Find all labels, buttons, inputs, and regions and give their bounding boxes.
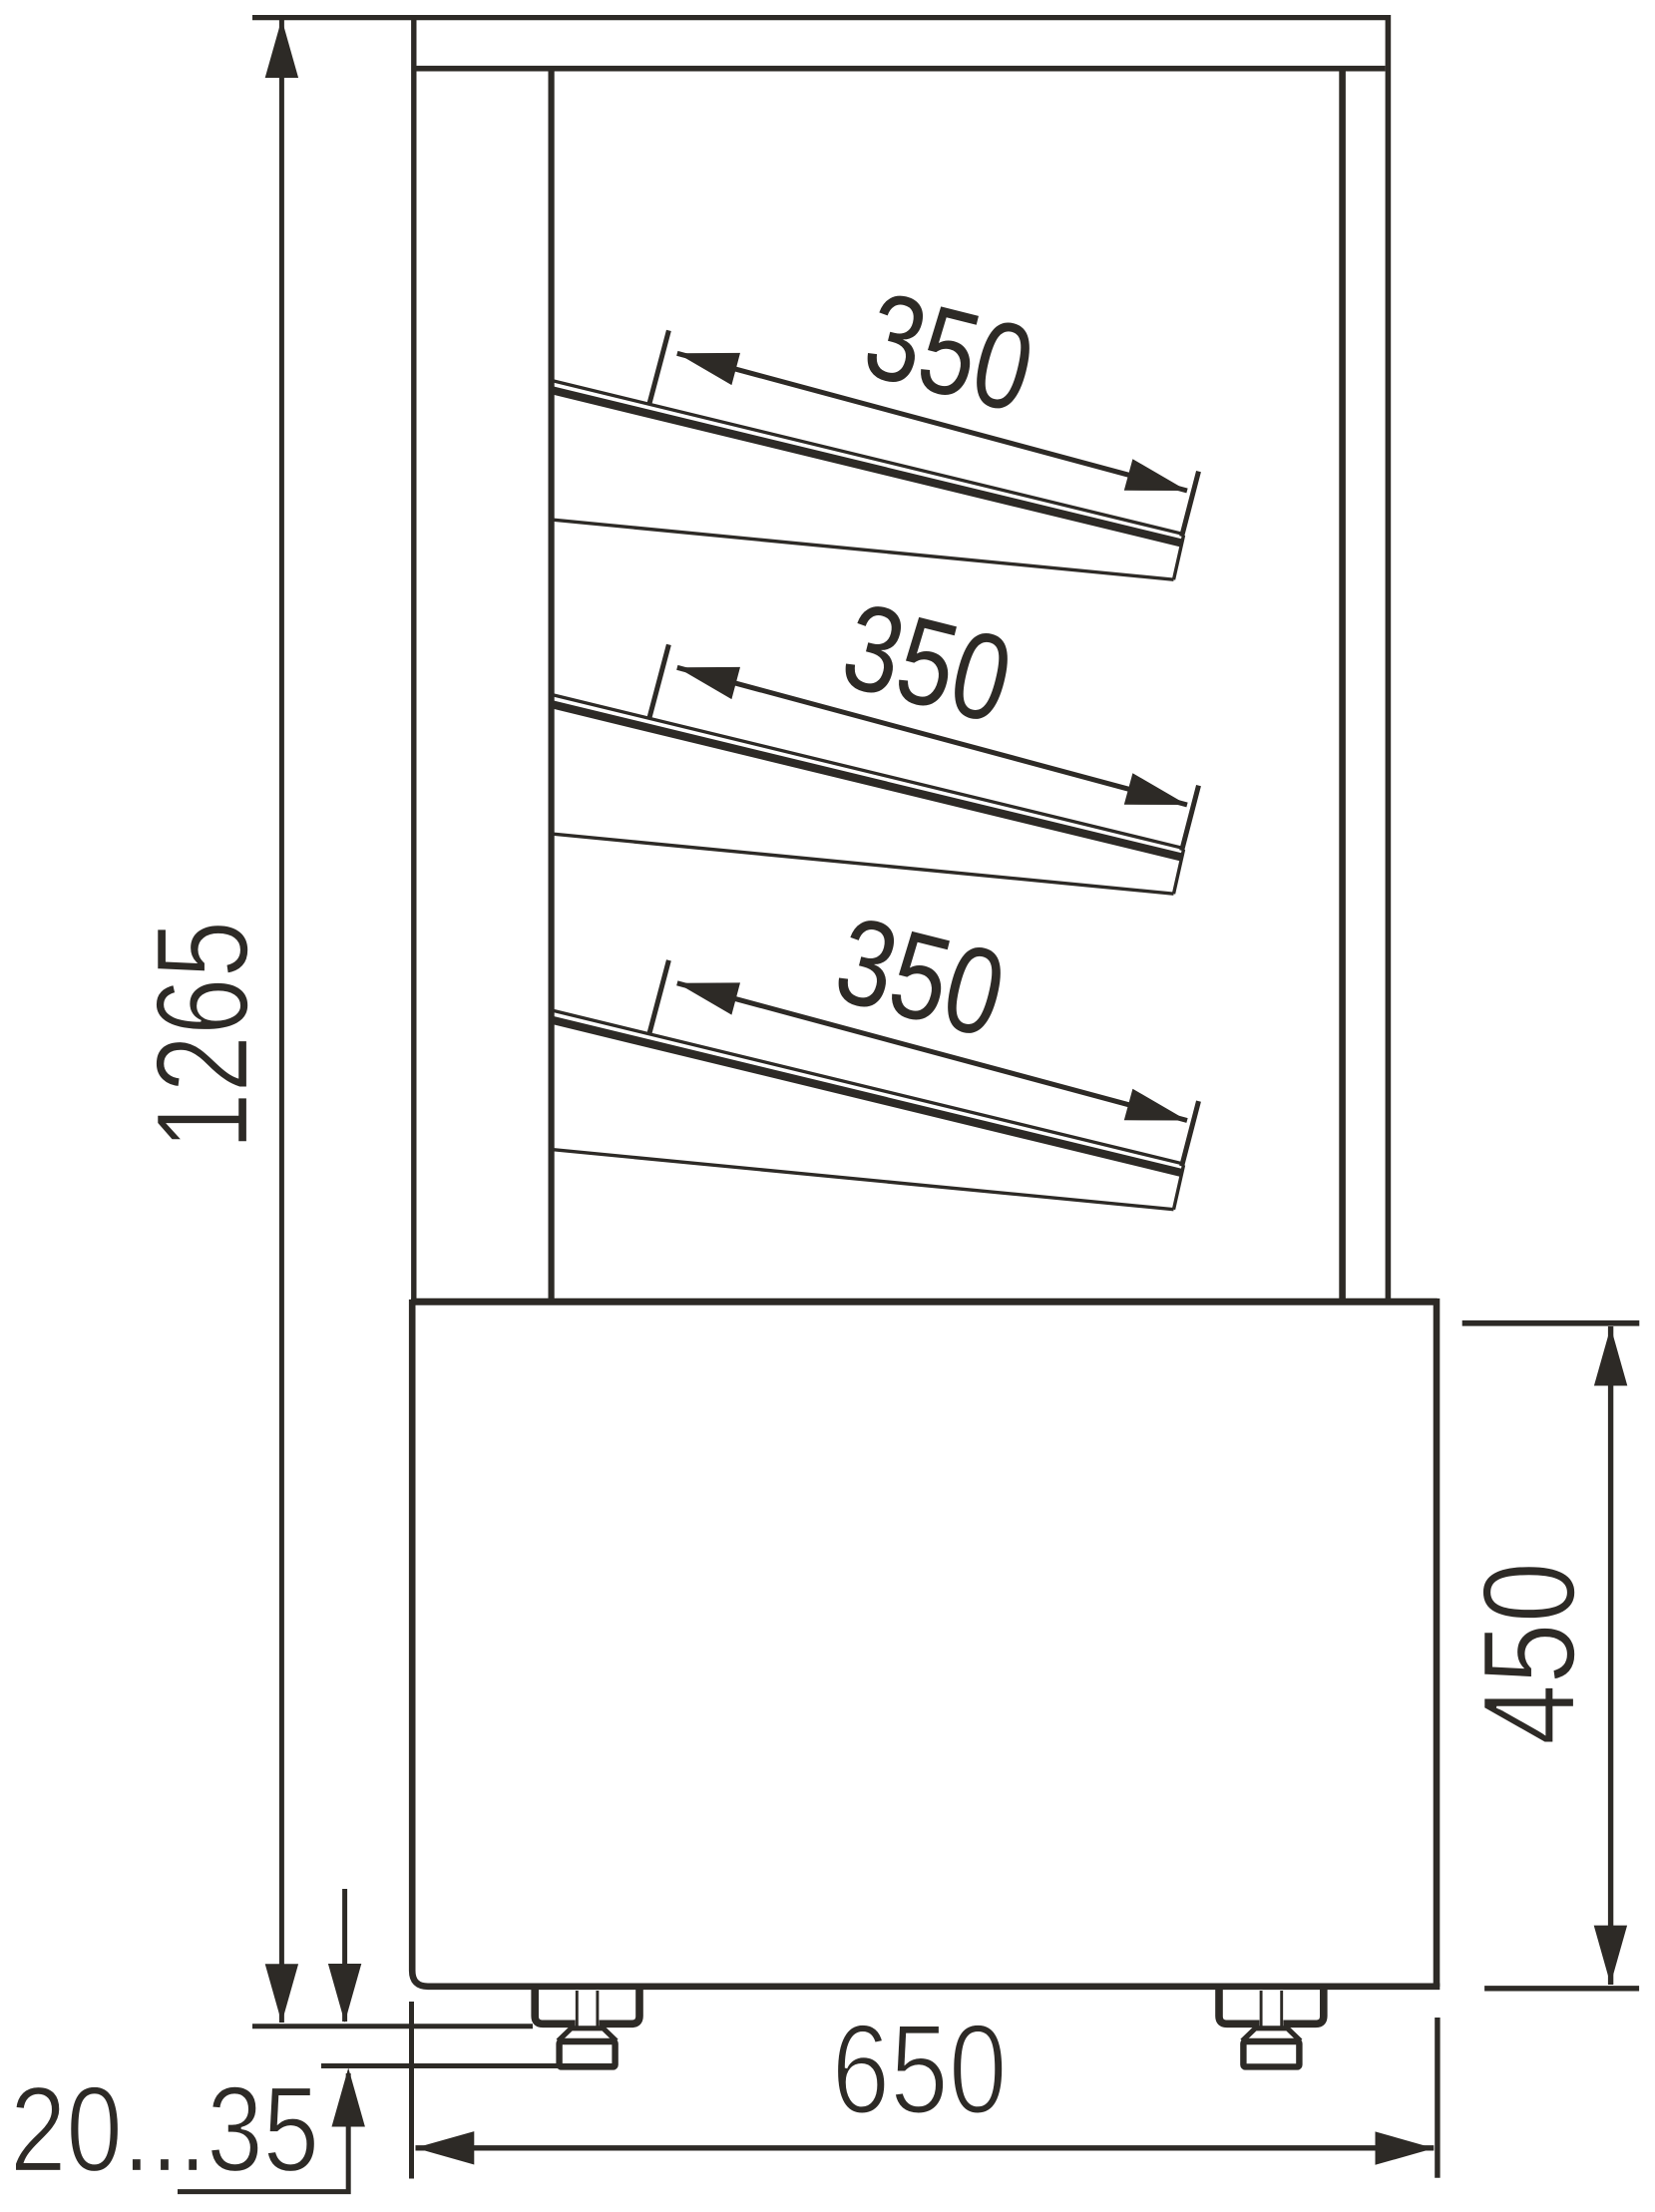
svg-text:650: 650 bbox=[832, 1999, 1008, 2141]
svg-text:350: 350 bbox=[853, 266, 1046, 439]
svg-text:1265: 1265 bbox=[129, 921, 275, 1150]
svg-text:20...35: 20...35 bbox=[10, 2061, 319, 2197]
svg-text:350: 350 bbox=[824, 892, 1018, 1064]
svg-text:350: 350 bbox=[831, 577, 1025, 750]
svg-text:450: 450 bbox=[1455, 1562, 1602, 1745]
